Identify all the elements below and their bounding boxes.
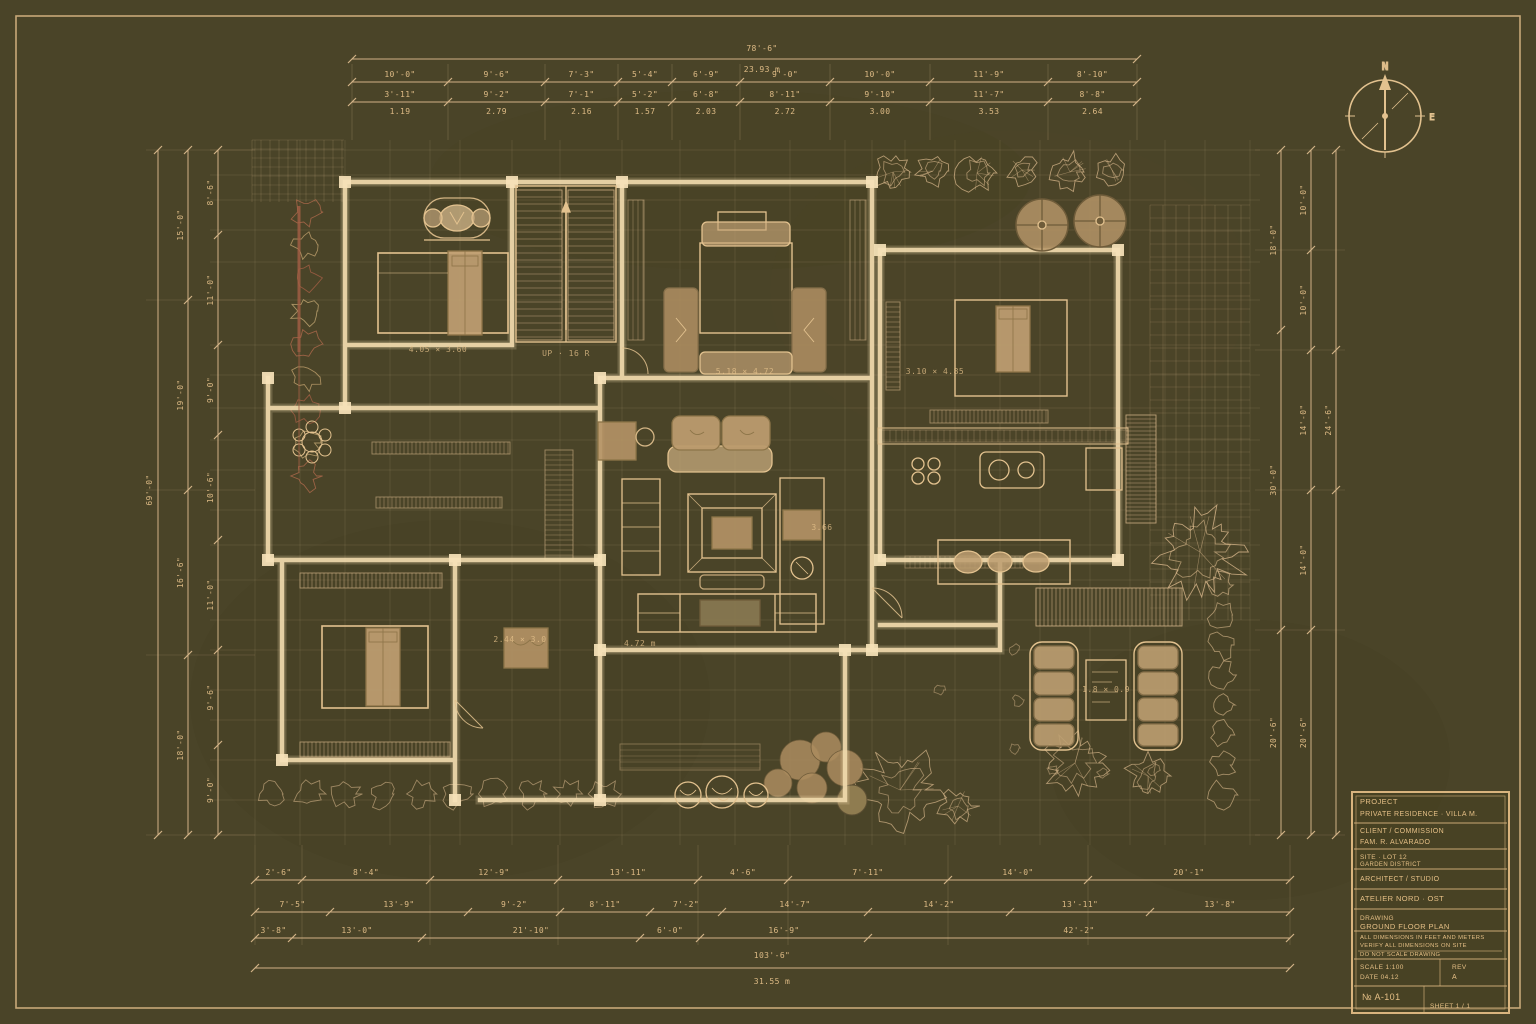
dim-label: 9'-2": [483, 90, 509, 99]
round-table: [1074, 195, 1126, 247]
dim-label: 3'-11": [384, 90, 415, 99]
room-annotation: 3.10 × 4.85: [906, 367, 964, 376]
dim-label: 42'-2": [1063, 926, 1094, 935]
dim-label: 8'-4": [353, 868, 379, 877]
dim-label: 7'-3": [568, 70, 594, 79]
dim-label: 24'-6": [1324, 404, 1333, 435]
title-block-text: REV: [1452, 964, 1467, 971]
dim-label: 1.57: [635, 107, 656, 116]
dim-label: 21'-10": [513, 926, 550, 935]
dim-label: 9'-0": [772, 70, 798, 79]
dim-label: 14'-0": [1002, 868, 1033, 877]
title-block-text: VERIFY ALL DIMENSIONS ON SITE: [1360, 943, 1467, 949]
dim-label: 7'-11": [852, 868, 883, 877]
title-block-text: DO NOT SCALE DRAWING: [1360, 952, 1441, 958]
dim-label: 2'-6": [265, 868, 291, 877]
dim-label: 3'-8": [260, 926, 286, 935]
dim-label: 103'-6": [754, 951, 791, 960]
cabinet-left: [622, 479, 660, 575]
dim-label: 20'-6": [1299, 717, 1308, 748]
dim-label: 7'-1": [568, 90, 594, 99]
title-block-text: DATE 04.12: [1360, 974, 1399, 981]
title-block-text: ARCHITECT / STUDIO: [1360, 876, 1440, 883]
dim-label: 10'-0": [1299, 184, 1308, 215]
dim-label: 18'-0": [176, 729, 185, 760]
title-block-text: DRAWING: [1360, 915, 1394, 922]
dim-label: 9'-6": [206, 684, 215, 710]
title-block-text: № A-101: [1362, 992, 1400, 1002]
dim-label: 20'-1": [1173, 868, 1204, 877]
side-table: [598, 422, 654, 460]
dim-label: 11'-9": [973, 70, 1004, 79]
dim-label: 11'-0": [206, 579, 215, 610]
dim-label: 9'-0": [206, 377, 215, 403]
compass-rose: N E: [1345, 60, 1435, 158]
dim-label: 2.16: [571, 107, 592, 116]
dim-label: 14'-0": [1299, 404, 1308, 435]
blueprint-sheet: N E 78'-6"23.93 m10'-0"9'-6"7'-3"5'-4"6'…: [0, 0, 1536, 1024]
dim-label: 13'-11": [610, 868, 647, 877]
dim-label: 11'-7": [973, 90, 1004, 99]
coffee-table: [688, 494, 776, 589]
dim-label: 9'-2": [501, 900, 527, 909]
bed-top-left: [378, 251, 508, 335]
dim-label: 19'-0": [176, 379, 185, 410]
compass-east-label: E: [1429, 113, 1434, 123]
dim-label: 10'-6": [206, 472, 215, 503]
title-block-text: PRIVATE RESIDENCE · VILLA M.: [1360, 811, 1478, 818]
title-block-text: PROJECT: [1360, 797, 1398, 806]
compass-north-label: N: [1382, 60, 1389, 73]
dim-label: 5'-2": [632, 90, 658, 99]
dim-label: 13'-11": [1062, 900, 1099, 909]
dim-label: 10'-0": [384, 70, 415, 79]
title-block-text: SHEET 1 / 1: [1430, 1003, 1470, 1010]
dim-label: 20'-6": [1269, 717, 1278, 748]
dim-label: 8'-11": [769, 90, 800, 99]
room-annotation: 1.8 × 0.9: [1082, 685, 1130, 694]
dim-label: 14'-2": [923, 900, 954, 909]
title-block-text: GARDEN DISTRICT: [1360, 862, 1421, 868]
dim-label: 4'-6": [730, 868, 756, 877]
dim-label: 14'-0": [1299, 544, 1308, 575]
dim-label: 78'-6": [746, 44, 777, 53]
title-block-text: SITE · LOT 12: [1360, 854, 1407, 861]
dim-label: 13'-0": [341, 926, 372, 935]
dim-label: 8'-6": [206, 179, 215, 205]
dim-label: 6'-9": [693, 70, 719, 79]
dim-label: 69'-0": [145, 474, 154, 505]
dim-label: 9'-0": [206, 777, 215, 803]
table-bottom-middle: [504, 628, 548, 668]
dim-label: 8'-11": [589, 900, 620, 909]
dim-label: 10'-0": [1299, 284, 1308, 315]
dim-label: 13'-9": [383, 900, 414, 909]
cooktop: [912, 458, 940, 484]
dim-label: 5'-4": [632, 70, 658, 79]
dim-label: 8'-10": [1077, 70, 1108, 79]
dim-label: 30'-0": [1269, 464, 1278, 495]
room-annotation: 3.66: [811, 523, 832, 532]
title-block-text: GROUND FLOOR PLAN: [1360, 922, 1450, 931]
dim-label: 16'-9": [768, 926, 799, 935]
title-block-text: SCALE 1:100: [1360, 964, 1404, 971]
dim-label: 13'-8": [1204, 900, 1235, 909]
dim-label: 2.64: [1082, 107, 1103, 116]
dim-label: 31.55 m: [754, 977, 791, 986]
dim-label: 14'-7": [779, 900, 810, 909]
room-annotation: 2.44 × 3.0: [493, 635, 546, 644]
dim-label: 15'-0": [176, 209, 185, 240]
dim-label: 8'-8": [1079, 90, 1105, 99]
dim-label: 18'-0": [1269, 224, 1278, 255]
dim-label: 9'-6": [483, 70, 509, 79]
dim-label: 7'-5": [279, 900, 305, 909]
dim-label: 2.72: [775, 107, 796, 116]
cabinet-right: [780, 478, 824, 624]
floor-plan-drawing: N E 78'-6"23.93 m10'-0"9'-6"7'-3"5'-4"6'…: [0, 0, 1536, 1024]
dim-label: 12'-9": [478, 868, 509, 877]
title-block-text: ALL DIMENSIONS IN FEET AND METERS: [1360, 935, 1485, 941]
dim-label: 6'-8": [693, 90, 719, 99]
title-block-text: FAM. R. ALVARADO: [1360, 839, 1430, 846]
dim-label: 2.03: [696, 107, 717, 116]
room-annotation: 4.72 m: [624, 639, 656, 648]
room-annotation: 5.18 × 4.72: [716, 367, 774, 376]
dim-label: 2.79: [486, 107, 507, 116]
title-block-text: ATELIER NORD · OST: [1360, 894, 1444, 903]
room-annotation: UP · 16 R: [542, 349, 590, 358]
title-block-text: A: [1452, 974, 1457, 981]
round-table: [1016, 199, 1068, 251]
dim-label: 11'-0": [206, 274, 215, 305]
dim-label: 3.00: [870, 107, 891, 116]
dim-label: 6'-0": [657, 926, 683, 935]
dim-label: 16'-6": [176, 557, 185, 588]
title-block-text: CLIENT / COMMISSION: [1360, 828, 1444, 835]
room-annotation: 4.05 × 3.60: [409, 345, 467, 354]
dim-label: 7'-2": [673, 900, 699, 909]
dim-label: 3.53: [979, 107, 1000, 116]
dim-label: 10'-0": [864, 70, 895, 79]
dim-label: 1.19: [390, 107, 411, 116]
patio-sofa-left: [1030, 642, 1078, 750]
dim-label: 9'-10": [864, 90, 895, 99]
sofa-living: [668, 416, 772, 472]
